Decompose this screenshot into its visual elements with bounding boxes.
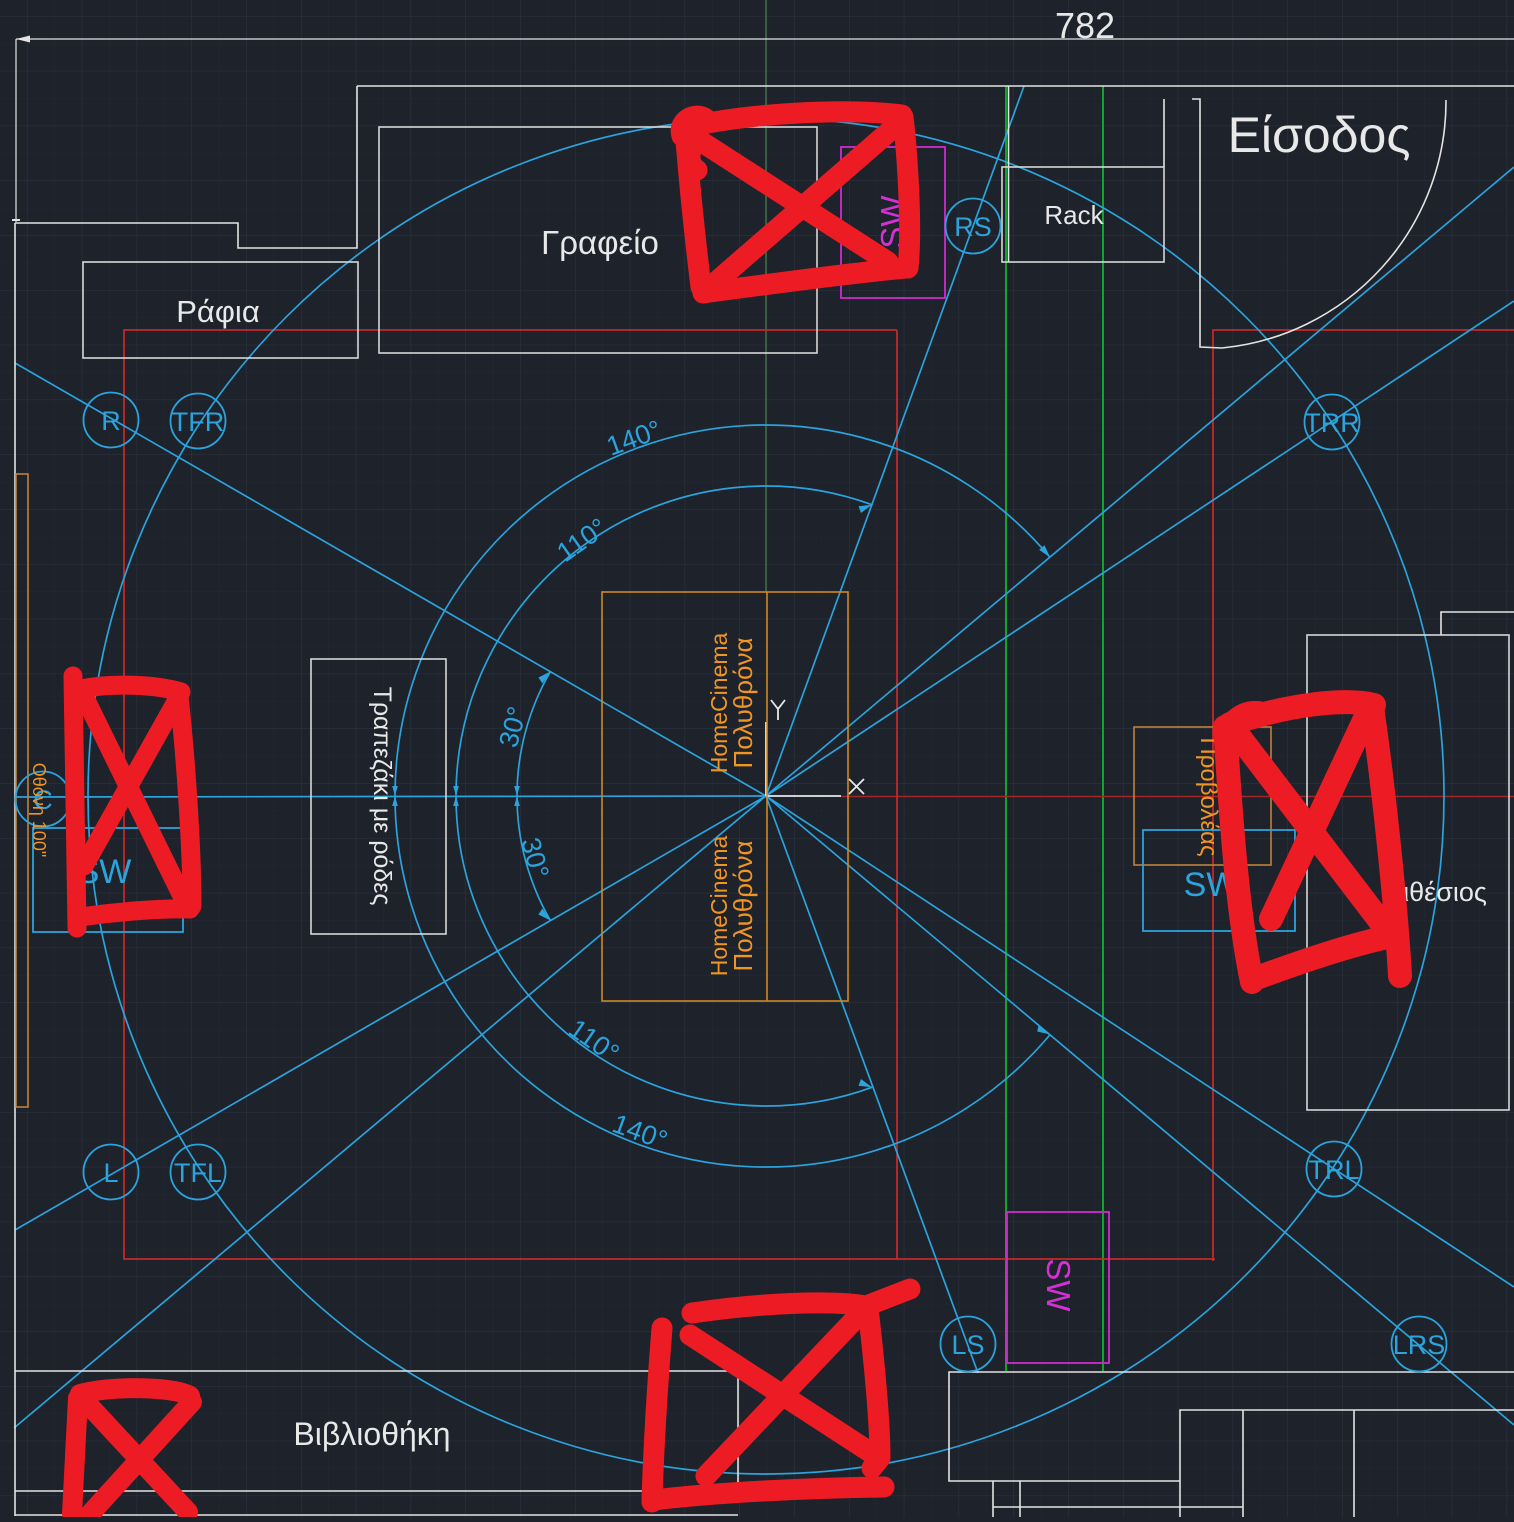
svg-text:Πολυθρόνα: Πολυθρόνα [728,637,758,768]
svg-text:LS: LS [951,1330,984,1360]
svg-text:TFR: TFR [172,407,224,437]
svg-text:LRS: LRS [1393,1330,1446,1360]
svg-text:Πολυθρόνα: Πολυθρόνα [728,840,758,971]
svg-text:TRL: TRL [1308,1155,1359,1185]
svg-text:782: 782 [1055,5,1115,46]
svg-text:HomeCinema: HomeCinema [706,632,732,773]
svg-text:Γραφείο: Γραφείο [541,224,659,261]
svg-text:Τραπεζάκι με ρόδες: Τραπεζάκι με ρόδες [368,687,396,906]
svg-text:Βιβλιοθήκη: Βιβλιοθήκη [293,1416,450,1452]
svg-text:Είσοδος: Είσοδος [1228,107,1411,163]
svg-text:R: R [101,406,121,436]
svg-text:Rack: Rack [1044,200,1104,230]
svg-text:HomeCinema: HomeCinema [706,835,732,976]
svg-text:L: L [103,1158,118,1188]
svg-text:TFL: TFL [174,1158,222,1188]
svg-text:SW: SW [1040,1258,1077,1312]
svg-text:RS: RS [954,212,992,242]
svg-text:Ράφια: Ράφια [176,294,260,329]
svg-text:Οθόνη 100": Οθόνη 100" [29,763,49,857]
svg-text:TRR: TRR [1304,408,1360,438]
